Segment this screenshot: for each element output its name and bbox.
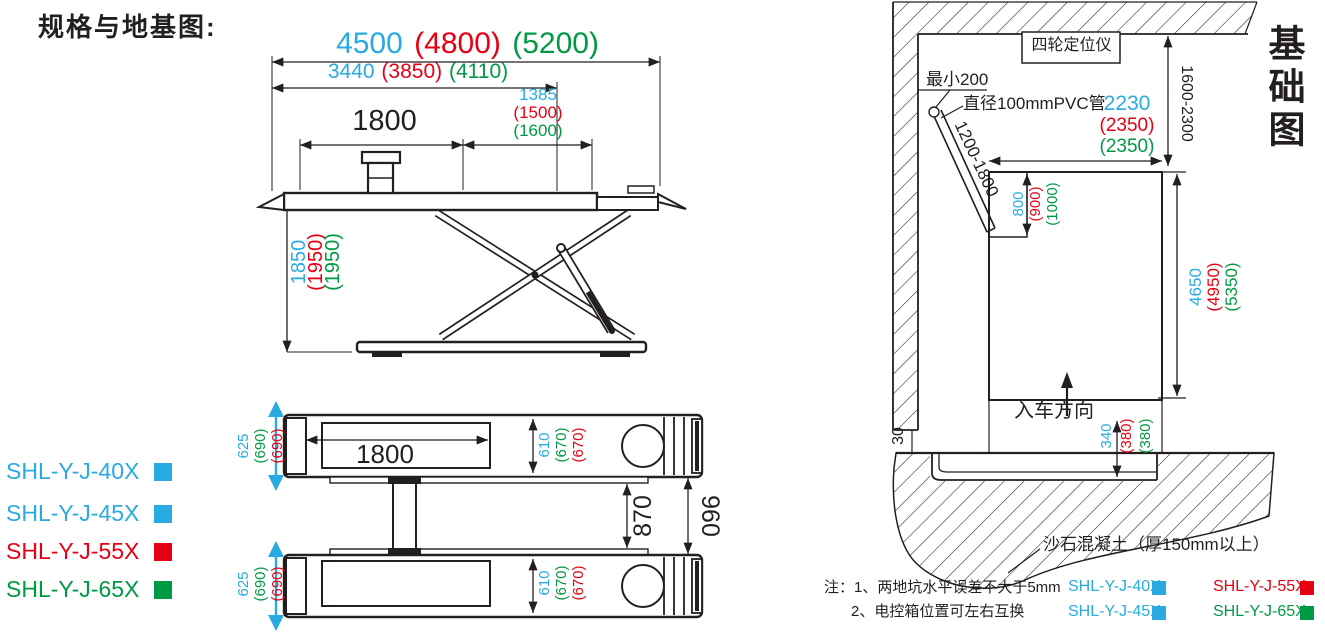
spec-foundation-drawing: 规格与地基图: 4500 (4800) (5200) 3440 (3850) (… [0,0,1325,639]
dim-part: 2230 [1090,92,1164,115]
legend-item: SHL-Y-J-65X [1213,604,1306,621]
dim-inner-gap: 870 [631,481,656,551]
dim-part: (5200) [512,27,599,60]
dim-tread-width: 610 [537,428,552,462]
model-item: SHL-Y-J-55X [6,539,139,563]
dim-total-length: 4500 (4800) (5200) [270,28,665,60]
dim-pit-length: (5350) [1223,254,1240,320]
dim-niche-length: 800 [1011,187,1026,221]
dim-pit-length: (4950) [1205,254,1222,320]
dim-pit-depth: (380) [1119,411,1134,461]
dim-niche-length: (1000) [1045,176,1060,232]
dim-outer-gap: 960 [697,481,722,551]
model-color-swatch [154,581,172,599]
dim-part: 3440 [328,60,375,83]
aligner-box-label: 四轮定位仪 [1023,38,1120,55]
foundation-title: 基础图 [1256,24,1310,153]
dim-part: (4800) [414,27,501,60]
dim-raise-height: (1950) [323,202,343,322]
legend-item: SHL-Y-J-55X [1213,579,1306,596]
legend-color-swatch [1152,581,1166,595]
note-line-1: 注：1、两地坑水平误差不大于5mm [824,580,1061,596]
dim-edge-step: 30 [891,416,907,456]
dim-outer-width: 625 [236,566,251,602]
dim-tread-width: (670) [554,421,569,469]
note-line-2: 2、电控箱位置可左右互换 [851,604,1024,620]
dim-outer-width: (690) [253,559,268,609]
dim-wall-distance: 1600-2300 [1178,46,1194,161]
dim-part: (1500) [492,104,584,122]
dim-pit-depth: 340 [1099,418,1114,454]
dim-part: 4500 [336,27,403,60]
dim-end-offset: 1385 (1500) (1600) [492,86,584,140]
model-color-swatch [154,543,172,561]
drive-in-label: 入车方向 [1014,401,1094,422]
concrete-note: 沙石混凝土（厚150mm以上） [1043,536,1270,554]
dim-tread-width: (670) [554,559,569,607]
legend-color-swatch [1300,581,1314,595]
dim-outer-width: (690) [270,559,285,609]
dim-tread-width: (670) [571,421,586,469]
dim-outer-width: 625 [236,428,251,464]
model-color-swatch [154,505,172,523]
dim-part: (2350) [1090,115,1164,136]
dim-pit-width: 2230 (2350) (2350) [1090,92,1164,157]
dim-part: (4110) [449,60,508,83]
dim-tread-width: (670) [571,559,586,607]
dim-outer-width: (690) [270,421,285,471]
dim-outer-width: (690) [253,421,268,471]
pvc-pipe-label: 直径100mmPVC管 [963,95,1106,113]
model-item: SHL-Y-J-65X [6,577,139,601]
model-item: SHL-Y-J-45X [6,501,139,525]
legend-item: SHL-Y-J-45X [1068,604,1161,621]
dim-part: (3850) [381,60,442,83]
dim-part: (1600) [492,122,584,140]
legend-item: SHL-Y-J-40X [1068,579,1161,596]
dim-platform-length-plan: 1800 [330,441,440,468]
dim-part: (2350) [1090,136,1164,157]
dim-part: 1385 [492,86,584,104]
model-item: SHL-Y-J-40X [6,459,139,483]
dim-pit-depth: (380) [1138,411,1153,461]
legend-color-swatch [1152,606,1166,620]
dim-tread-width: 610 [537,566,552,600]
dim-platform-length-side: 1800 [332,106,437,136]
dim-niche-length: (900) [1028,180,1043,228]
min-clearance-label: 最小200 [926,71,988,89]
legend-color-swatch [1300,606,1314,620]
page-title: 规格与地基图: [38,14,217,41]
dim-pit-length: 4650 [1187,261,1204,313]
dim-frame-length: 3440 (3850) (4110) [273,61,563,83]
model-color-swatch [154,463,172,481]
